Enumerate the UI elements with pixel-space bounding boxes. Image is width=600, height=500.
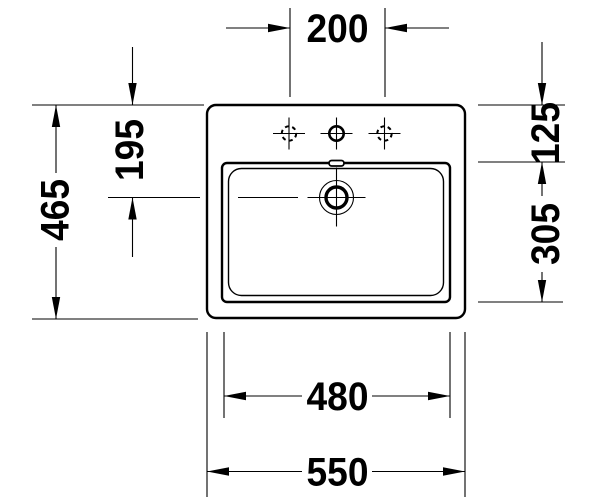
tap-hole-center bbox=[321, 118, 353, 150]
arrowhead-right bbox=[268, 24, 290, 32]
overflow-slot bbox=[329, 161, 344, 167]
drain-with-centerlines bbox=[308, 168, 366, 227]
arrowhead-left bbox=[385, 24, 407, 32]
arrowhead-down bbox=[538, 280, 546, 302]
technical-drawing-canvas: 200 465 195 125 305 bbox=[0, 0, 600, 500]
arrowhead-down bbox=[128, 83, 136, 105]
dim-back-to-drain: 195 bbox=[108, 47, 200, 257]
basin bbox=[207, 105, 465, 318]
arrowhead-up bbox=[128, 198, 136, 220]
washbasin-dimension-diagram: 200 465 195 125 305 bbox=[0, 0, 600, 500]
dim-tap-hole-spacing: 200 bbox=[226, 7, 449, 97]
dim-back-to-bowl: 125 bbox=[478, 42, 568, 164]
dim-label-total-width: 550 bbox=[307, 451, 369, 495]
arrowhead-up bbox=[538, 162, 546, 184]
arrowhead-left bbox=[207, 467, 229, 475]
dim-label-back-to-drain: 195 bbox=[108, 119, 152, 181]
dim-label-total-depth: 465 bbox=[34, 179, 78, 241]
arrowhead-left bbox=[224, 392, 246, 400]
dim-bowl-width: 480 bbox=[224, 332, 450, 419]
arrowhead-right bbox=[443, 467, 465, 475]
optional-tap-hole-right bbox=[369, 118, 401, 150]
dim-label-back-to-bowl: 125 bbox=[524, 102, 568, 164]
arrowhead-right bbox=[428, 392, 450, 400]
arrowhead-down bbox=[52, 297, 60, 319]
dim-label-bowl-width: 480 bbox=[307, 375, 369, 419]
dim-label-bowl-depth: 305 bbox=[524, 203, 568, 265]
dim-bowl-depth: 305 bbox=[478, 162, 568, 302]
optional-tap-hole-left bbox=[273, 118, 305, 150]
dim-label-tap-hole-spacing: 200 bbox=[307, 7, 369, 51]
arrowhead-up bbox=[52, 105, 60, 127]
arrowhead-down bbox=[538, 83, 546, 105]
